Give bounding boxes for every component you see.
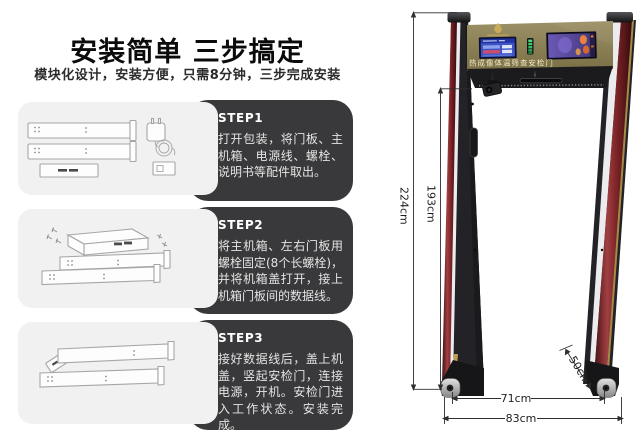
dimension-outer-width: 83cm — [442, 397, 624, 425]
gate-beam — [467, 66, 613, 97]
step1-illustration-panel — [18, 102, 218, 195]
manual-icon — [153, 162, 175, 175]
led-indicator — [527, 38, 534, 55]
step2-label: STEP2 — [218, 218, 343, 232]
step1-illustration — [18, 102, 218, 195]
handle-slot — [520, 79, 562, 83]
inner-width-label: 71cm — [501, 392, 532, 405]
installation-infographic: 安装简单 三步搞定 模块化设计，安装方便，只需8分钟，三步完成安装 STEP1 … — [0, 0, 642, 440]
step-card-2: STEP2 将主机箱、左右门板用螺栓固定(8个长螺栓)，并将机箱盖打开，接上机箱… — [0, 207, 360, 314]
outer-width-label: 83cm — [506, 412, 537, 425]
step3-label: STEP3 — [218, 331, 343, 345]
step3-text: 接好数据线后，盖上机盖，竖起安检门，连接电源，开机。安检门进入工作状态。安装完成… — [218, 351, 343, 434]
step2-text: 将主机箱、左右门板用螺栓固定(8个长螺栓)，并将机箱盖打开，接上机箱门板间的数据… — [218, 238, 343, 304]
pillar-top-cap — [607, 12, 634, 23]
pillar-handle-recess — [470, 128, 478, 157]
control-box-illustration — [40, 164, 98, 177]
step2-illustration-panel — [18, 209, 218, 308]
gate-header-panel: 热成像体温筛查安检门 — [467, 21, 613, 71]
door-panel-illustration — [28, 121, 136, 162]
main-unit-box-illustration — [68, 229, 148, 255]
step-card-3: STEP3 接好数据线后，盖上机盖，竖起安检门，连接电源，开机。安检门进入工作状… — [0, 320, 360, 430]
inner-height-label: 193cm — [425, 185, 438, 223]
step3-illustration — [18, 322, 218, 424]
nameplate-text: 热成像体温筛查安检门 — [469, 59, 554, 68]
page-subtitle: 模块化设计，安装方便，只需8分钟，三步完成安装 — [0, 64, 375, 83]
power-adapter-icon — [147, 119, 175, 157]
outer-height-label: 224cm — [398, 187, 411, 225]
step2-illustration — [18, 209, 218, 308]
pillar-top-cap — [448, 12, 471, 23]
lcd-display — [479, 37, 517, 59]
step1-text: 打开包装，将门板、主机箱、电源线、螺栓、说明书等配件取出。 — [218, 131, 343, 181]
step1-label: STEP1 — [218, 111, 343, 125]
instructions-section: 安装简单 三步搞定 模块化设计，安装方便，只需8分钟，三步完成安装 STEP1 … — [0, 0, 380, 440]
security-gate-illustration: 热成像体温筛查安检门 — [395, 0, 642, 440]
door-panel-illustration — [42, 251, 170, 285]
step3-illustration-panel — [18, 322, 218, 424]
step-card-1: STEP1 打开包装，将门板、主机箱、电源线、螺栓、说明书等配件取出。 — [0, 100, 360, 201]
thermal-display — [546, 31, 597, 59]
